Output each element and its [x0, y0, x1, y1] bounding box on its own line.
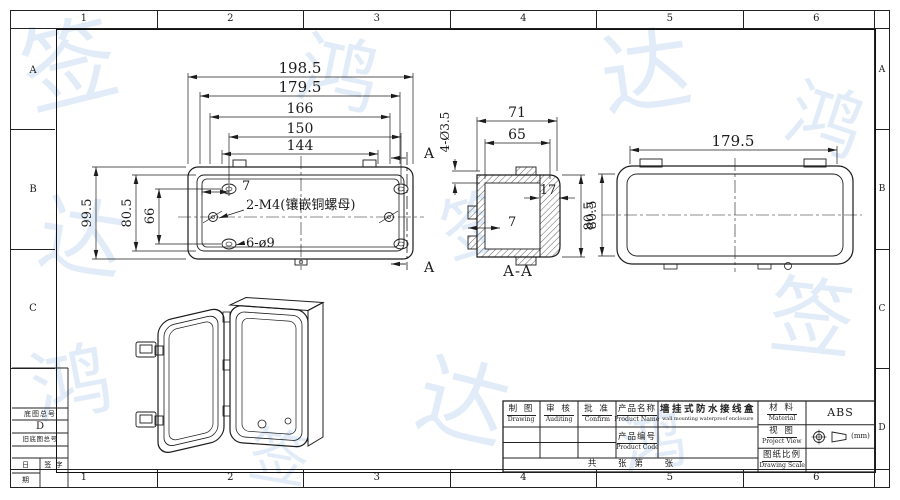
scale-label-en: Drawing Scale — [759, 462, 805, 469]
dim-144: 144 — [287, 138, 314, 154]
iso-body — [230, 298, 323, 448]
title-block-auditing: 审 核 Auditing — [541, 402, 577, 426]
drawing-label-en: Drawing — [508, 416, 535, 423]
dim-side-80-5: 80.5 — [585, 201, 600, 230]
scale-label-zh: 图纸比例 — [762, 451, 802, 462]
product-name-value: 墙挂式防水接线盒 wall mounting waterproof enclos… — [659, 402, 757, 426]
title-block-confirm: 批 准 Confirm — [579, 402, 615, 426]
dim-80-5: 80.5 — [120, 199, 135, 228]
side-centerlines — [602, 158, 862, 272]
product-name-zh: 墙挂式防水接线盒 — [660, 405, 756, 416]
signature-cell: 签 字 — [41, 458, 67, 473]
date-top-label: 日 — [22, 461, 30, 469]
date-top-cell: 日 — [13, 458, 39, 473]
product-code-label: 产品编号 Product Code — [617, 428, 657, 457]
date-bottom-cell: 期 — [13, 473, 39, 487]
dim-66: 66 — [143, 208, 158, 225]
dim-side-179-5: 179.5 — [712, 132, 755, 150]
thread-note: 2-M4(镶嵌铜螺母) — [246, 197, 355, 213]
side-dimensions — [598, 146, 837, 256]
dim-71: 71 — [508, 105, 526, 121]
product-code-label-en: Product Code — [616, 444, 659, 451]
section-view-label: A-A — [502, 262, 533, 280]
view-label-en: Project View — [762, 438, 802, 445]
product-name-label: 产品名称 Product Name — [617, 402, 657, 426]
front-left-dim-texts: 99.5 80.5 66 — [80, 199, 158, 228]
iso-latches — [136, 342, 163, 427]
technical-drawing: A A 198.5 179.5 166 150 144 — [0, 0, 900, 500]
dim-edge-7: 7 — [242, 179, 250, 194]
section-marker-bottom: A — [423, 260, 435, 276]
dim-179-5: 179.5 — [279, 78, 322, 96]
material-label-en: Material — [769, 415, 796, 422]
material-abs: ABS — [827, 407, 854, 420]
iso-lid — [158, 307, 224, 455]
signature-label: 签 字 — [44, 461, 63, 469]
drawing-label-zh: 制 图 — [507, 405, 537, 416]
section-view: 71 65 17 7 80.5 4-Ø3.5 A-A — [438, 105, 597, 280]
view-value: (mm) — [807, 426, 874, 447]
material-label-zh: 材 料 — [767, 404, 797, 415]
dim-99-5: 99.5 — [80, 199, 95, 228]
product-name-en: wall mounting waterproof enclosure — [662, 417, 753, 423]
dim-150: 150 — [287, 121, 314, 137]
dim-166: 166 — [287, 101, 314, 117]
confirm-label-zh: 批 准 — [582, 405, 612, 416]
product-name-label-en: Product Name — [614, 416, 659, 423]
base-drawing-no-label: 底图总号 — [24, 410, 56, 418]
product-name-label-zh: 产品名称 — [617, 405, 657, 416]
old-base-drawing-no-label: 旧底图总号 — [23, 436, 58, 443]
isometric-view — [136, 298, 323, 456]
corner-zone-d: D — [13, 420, 67, 433]
dim-65: 65 — [508, 127, 526, 143]
front-top-dim-texts: 198.5 179.5 166 150 144 — [279, 59, 322, 154]
hole-note-4-d3-5: 4-Ø3.5 — [438, 112, 452, 153]
material-label: 材 料 Material — [759, 402, 805, 424]
sheet-count-row: 共 张 第 张 — [504, 459, 757, 471]
auditing-label-zh: 审 核 — [544, 405, 574, 416]
dim-17: 17 — [540, 183, 557, 198]
view-label: 视 图 Project View — [759, 426, 805, 447]
scale-label: 图纸比例 Drawing Scale — [759, 449, 805, 471]
front-view-holes — [203, 184, 408, 249]
front-notes — [202, 185, 244, 245]
zone-letter-d: D — [36, 421, 44, 433]
side-view: 179.5 80.5 — [585, 132, 862, 272]
unit-note: (mm) — [851, 432, 870, 440]
date-bottom-label: 期 — [22, 476, 30, 484]
projection-symbol-icon — [811, 429, 849, 445]
base-drawing-no: 底图总号 — [13, 408, 67, 420]
sheet-count-text: 共 张 第 张 — [588, 460, 673, 470]
section-marker-top: A — [423, 146, 435, 162]
confirm-label-en: Confirm — [584, 416, 609, 423]
material-value: ABS — [807, 402, 874, 424]
drawing-sheet: 签 鸿 达 鸿 达 签 签 鸿 达 鸿 签 1 2 3 4 5 6 1 2 3 … — [0, 0, 900, 500]
old-base-drawing-no: 旧底图总号 — [13, 433, 67, 446]
title-block-drawing: 制 图 Drawing — [504, 402, 539, 426]
hole-note: 6-ø9 — [246, 236, 275, 251]
dim-flange-7: 7 — [508, 215, 516, 230]
dim-198-5: 198.5 — [279, 59, 322, 77]
auditing-label-en: Auditing — [546, 416, 573, 423]
front-view: A A 198.5 179.5 166 150 144 — [80, 59, 435, 276]
